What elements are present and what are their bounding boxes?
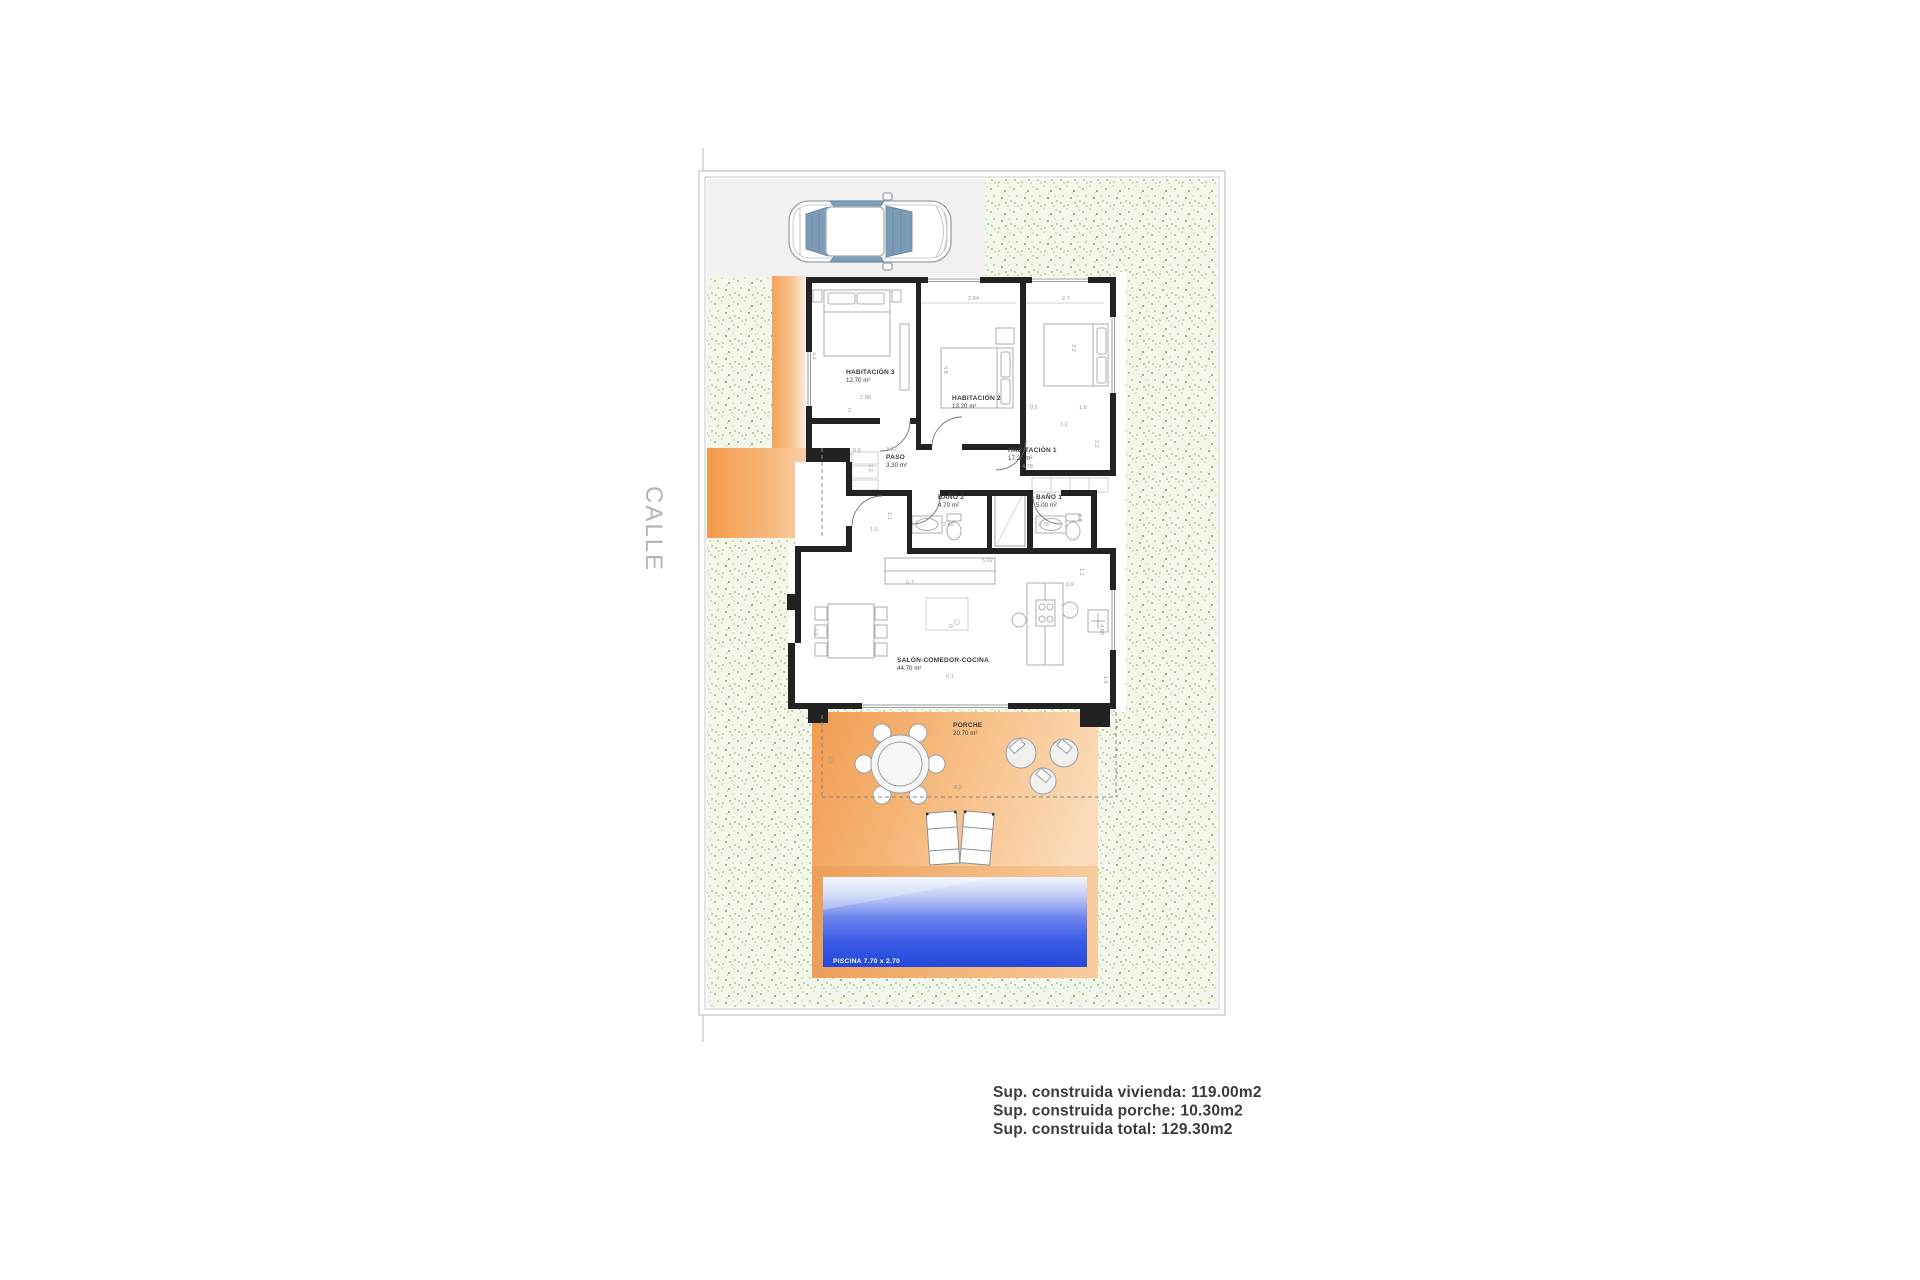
room-area-paso: 3.30 m² — [886, 462, 907, 469]
summary-total: Sup. construida total: 129.30m2 — [993, 1121, 1233, 1138]
svg-text:2.65: 2.65 — [943, 522, 954, 528]
svg-text:2.7: 2.7 — [1062, 296, 1070, 302]
svg-text:5.02: 5.02 — [982, 558, 993, 564]
svg-text:1.8: 1.8 — [1076, 514, 1082, 522]
svg-text:2.94: 2.94 — [968, 296, 979, 302]
svg-text:2.88: 2.88 — [860, 395, 871, 401]
room-area-habitacion-3: 12.70 m² — [846, 377, 870, 384]
svg-text:4.4: 4.4 — [810, 352, 816, 360]
side-path-orange — [772, 276, 806, 448]
svg-text:0.9: 0.9 — [853, 448, 861, 454]
sun-lounger-2 — [959, 810, 994, 865]
room-label-salon: SALÓN-COMEDOR-COCINA — [897, 655, 989, 664]
svg-text:1.6: 1.6 — [1102, 676, 1108, 684]
room-area-bano-1: 5.00 m² — [1036, 502, 1057, 509]
room-area-habitacion-1: 17.20 m² — [1008, 455, 1032, 462]
svg-text:4.78: 4.78 — [1022, 464, 1033, 470]
fridge — [1088, 610, 1108, 632]
svg-text:2.1: 2.1 — [886, 512, 892, 520]
street-label: CALLE — [640, 486, 667, 572]
room-label-bano-2: BAÑO 2 — [938, 492, 964, 501]
svg-text:1.2: 1.2 — [1078, 568, 1084, 576]
svg-text:3.32: 3.32 — [886, 447, 897, 453]
svg-text:2.76: 2.76 — [1038, 522, 1049, 528]
summary-vivienda: Sup. construida vivienda: 119.00m2 — [993, 1084, 1262, 1101]
bedroom1-furniture — [1044, 324, 1108, 386]
sun-lounger-1 — [926, 811, 960, 865]
room-area-salon: 44.70 m² — [897, 665, 921, 672]
svg-text:8.2: 8.2 — [954, 785, 962, 791]
svg-text:2.2: 2.2 — [1093, 440, 1099, 448]
svg-text:1.6: 1.6 — [870, 527, 878, 533]
summary-porche: Sup. construida porche: 10.30m2 — [993, 1103, 1243, 1120]
room-label-porche: PORCHE — [953, 722, 983, 729]
room-area-porche: 20.70 m² — [953, 730, 977, 737]
dining-table — [815, 604, 887, 658]
room-label-paso: PASO — [886, 454, 905, 461]
svg-text:6.1: 6.1 — [946, 674, 954, 680]
room-label-bano-1: BAÑO 1 — [1036, 492, 1062, 501]
svg-text:0.5: 0.5 — [1030, 405, 1038, 411]
svg-text:6.7: 6.7 — [906, 580, 914, 586]
svg-text:4.68: 4.68 — [1098, 624, 1104, 635]
sideboard-counter — [885, 558, 995, 584]
floor-plan-page: PISCINA 7.70 x 2.70 — [0, 0, 1920, 1280]
room-label-habitacion-3: HABITACIÓN 3 — [846, 367, 895, 376]
swimming-pool: PISCINA 7.70 x 2.70 — [812, 866, 1098, 978]
svg-text:0.9: 0.9 — [1066, 582, 1074, 588]
site-plan: PISCINA 7.70 x 2.70 — [0, 0, 1920, 1280]
svg-text:2: 2 — [848, 408, 851, 414]
svg-text:1.2: 1.2 — [1060, 422, 1068, 428]
shaft — [995, 492, 1025, 546]
pool-label: PISCINA 7.70 x 2.70 — [833, 958, 900, 965]
svg-text:3.2: 3.2 — [1070, 344, 1076, 352]
svg-text:1.2: 1.2 — [867, 464, 873, 472]
svg-text:1.8: 1.8 — [1079, 405, 1087, 411]
built-area-summary: Sup. construida vivienda: 119.00m2 Sup. … — [993, 1084, 1262, 1138]
svg-text:4.0: 4.0 — [812, 628, 818, 636]
room-area-habitacion-2: 13.20 m² — [952, 403, 976, 410]
room-area-bano-2: 4.70 m² — [938, 502, 959, 509]
room-label-habitacion-2: HABITACIÓN 2 — [952, 393, 1001, 402]
car-top-view-icon — [789, 193, 951, 270]
svg-text:4.8: 4.8 — [942, 366, 948, 374]
svg-text:2.5: 2.5 — [827, 756, 833, 764]
room-label-habitacion-1: HABITACIÓN 1 — [1008, 445, 1057, 454]
